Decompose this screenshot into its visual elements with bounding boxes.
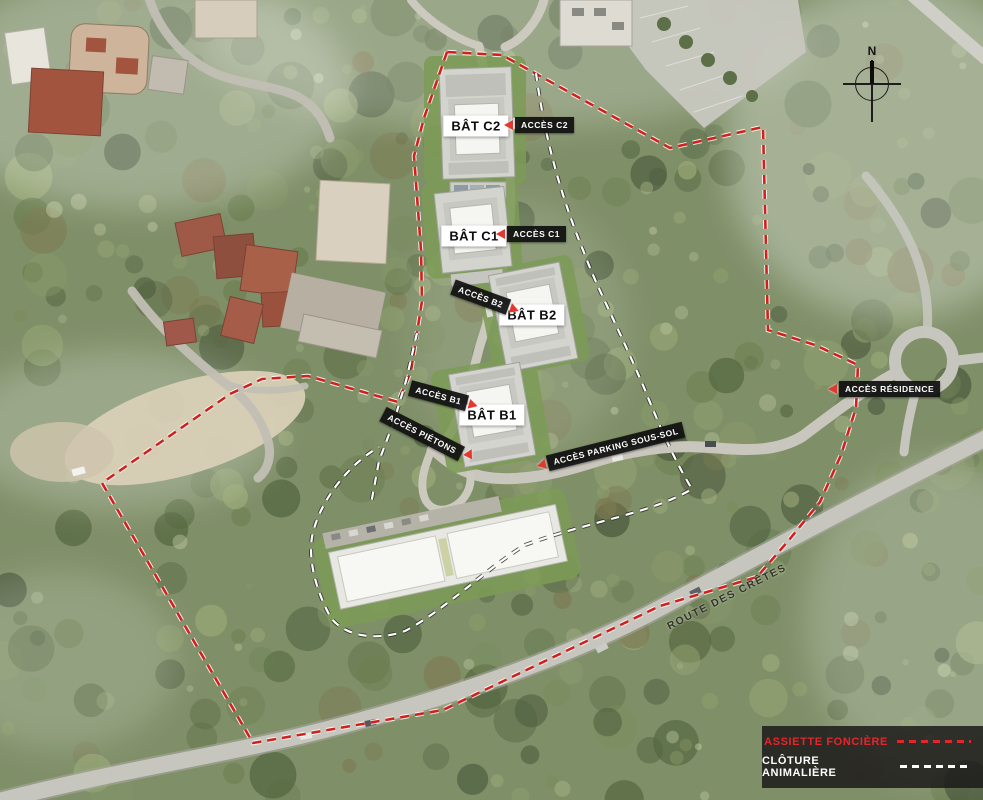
access-arrow-icon — [536, 459, 547, 471]
access-arrow-icon — [496, 229, 505, 239]
access-arrow-icon — [504, 120, 513, 130]
legend-label-assiette: ASSIETTE FONCIÈRE — [764, 736, 888, 748]
north-compass: N — [843, 44, 901, 124]
legend-item-assiette-fonciere: ASSIETTE FONCIÈRE — [764, 736, 971, 748]
building-label-c2: BÂT C2 — [443, 116, 508, 137]
access-label-c2: ACCÈS C2 — [504, 117, 574, 133]
site-plan: BÂT C2 BÂT C1 BÂT B2 BÂT B1 ACCÈS C2 ACC… — [0, 0, 983, 800]
access-arrow-icon — [828, 384, 837, 394]
building-label-c2-text: BÂT C2 — [443, 116, 508, 137]
access-label-residence-text: ACCÈS RÉSIDENCE — [839, 381, 940, 397]
legend-item-cloture-animaliere: CLÔTURE ANIMALIÈRE — [762, 755, 971, 779]
legend-label-cloture: CLÔTURE ANIMALIÈRE — [762, 755, 891, 779]
access-label-c1-text: ACCÈS C1 — [507, 226, 566, 242]
access-label-c2-text: ACCÈS C2 — [515, 117, 574, 133]
red-dash-swatch — [897, 740, 971, 744]
access-label-c1: ACCÈS C1 — [496, 226, 566, 242]
north-label: N — [843, 44, 901, 58]
white-dash-swatch — [900, 765, 971, 769]
access-label-residence: ACCÈS RÉSIDENCE — [828, 381, 940, 397]
legend-panel: ASSIETTE FONCIÈRE CLÔTURE ANIMALIÈRE — [762, 726, 983, 788]
compass-needle-icon — [870, 61, 875, 84]
